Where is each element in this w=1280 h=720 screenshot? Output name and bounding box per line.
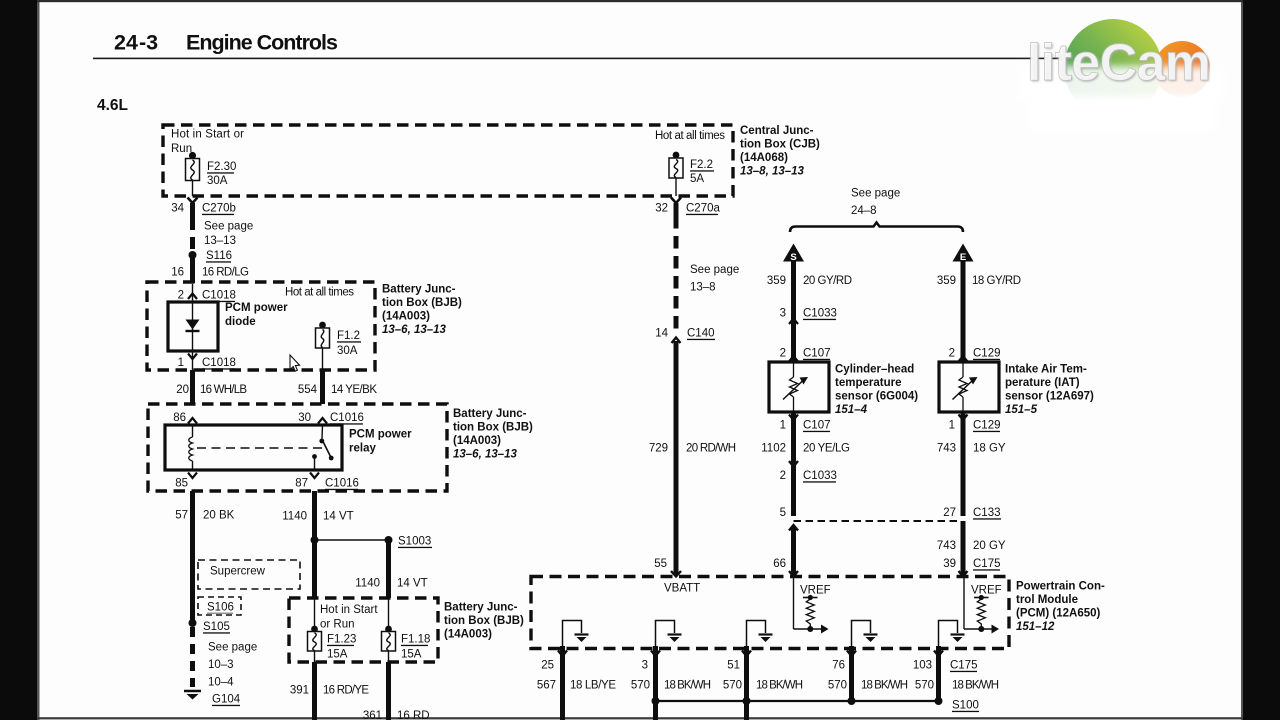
svg-text:151–12: 151–12 [1016,621,1055,633]
svg-text:13–6, 13–13: 13–6, 13–13 [382,324,447,336]
svg-text:F1.18: F1.18 [401,634,430,646]
svg-text:87: 87 [295,478,308,490]
svg-text:VREF: VREF [971,585,1002,597]
svg-text:S105: S105 [203,621,230,633]
svg-text:C1033: C1033 [803,470,837,482]
svg-text:55: 55 [654,558,667,570]
svg-text:743: 743 [937,540,956,552]
svg-text:1: 1 [178,357,184,369]
svg-text:391: 391 [290,685,309,697]
svg-text:27: 27 [943,507,956,519]
svg-text:-3: -3 [139,31,158,55]
svg-text:39: 39 [943,558,956,570]
svg-text:F1.23: F1.23 [327,634,356,646]
svg-text:3: 3 [642,660,648,672]
svg-text:C129: C129 [973,348,1001,360]
svg-text:570: 570 [631,680,650,692]
svg-text:2: 2 [780,348,786,360]
svg-text:13–8, 13–13: 13–8, 13–13 [740,166,805,178]
svg-text:18 BK/WH: 18 BK/WH [861,680,908,692]
svg-text:S116: S116 [206,250,232,262]
svg-text:See page: See page [208,642,257,654]
svg-text:5A: 5A [690,173,704,185]
svg-text:20 BK: 20 BK [203,510,235,522]
svg-text:(14A068): (14A068) [740,152,788,164]
svg-text:16: 16 [171,267,184,279]
svg-text:20 GY/RD: 20 GY/RD [803,275,852,287]
svg-text:C175: C175 [973,558,1001,570]
svg-text:567: 567 [537,680,556,692]
svg-text:25: 25 [541,660,554,672]
svg-text:Run: Run [171,143,192,155]
svg-text:14 VT: 14 VT [323,511,354,523]
svg-text:(14A003): (14A003) [453,435,501,447]
svg-text:Powertrain Con-: Powertrain Con- [1016,581,1105,593]
svg-text:Engine Controls: Engine Controls [186,31,338,55]
svg-text:(PCM) (12A650): (PCM) (12A650) [1016,608,1101,620]
svg-text:C1018: C1018 [202,290,236,302]
svg-text:temperature: temperature [835,377,901,389]
svg-text:76: 76 [832,660,845,672]
svg-text:361: 361 [363,710,382,720]
svg-text:S106: S106 [207,602,234,614]
svg-text:Supercrew: Supercrew [210,566,266,578]
svg-text:Hot at all times: Hot at all times [285,287,354,299]
svg-text:16 RD: 16 RD [397,710,430,720]
svg-text:5: 5 [780,507,786,519]
svg-text:1140: 1140 [282,511,307,523]
svg-text:24: 24 [114,31,138,55]
svg-text:C140: C140 [687,328,715,340]
svg-text:151–4: 151–4 [835,404,868,416]
svg-text:tion Box (CJB): tion Box (CJB) [740,139,820,151]
svg-text:570: 570 [723,680,742,692]
svg-text:359: 359 [937,275,956,287]
svg-text:C270b: C270b [202,203,236,215]
svg-text:sensor (12A697): sensor (12A697) [1005,391,1094,403]
svg-text:C1016: C1016 [325,478,359,490]
svg-text:359: 359 [767,275,786,287]
svg-text:Hot in Start or: Hot in Start or [171,129,244,141]
svg-text:Battery Junc-: Battery Junc- [444,602,518,614]
svg-text:18 BK/WH: 18 BK/WH [756,680,803,692]
svg-text:2: 2 [178,290,184,302]
svg-text:13–6, 13–13: 13–6, 13–13 [453,449,518,461]
svg-text:S: S [790,252,796,263]
svg-text:1: 1 [949,420,955,432]
svg-text:PCM power: PCM power [349,429,412,441]
svg-text:C1018: C1018 [202,357,236,369]
svg-text:14 VT: 14 VT [397,578,428,590]
svg-text:16 RD/LG: 16 RD/LG [202,267,249,279]
svg-text:570: 570 [828,680,847,692]
svg-text:16 RD/YE: 16 RD/YE [323,685,369,697]
svg-text:57: 57 [175,510,188,522]
svg-text:20 GY: 20 GY [973,540,1006,552]
svg-text:VREF: VREF [800,585,831,597]
svg-text:Intake Air Tem-: Intake Air Tem- [1005,364,1087,376]
svg-text:E: E [960,252,966,263]
svg-text:1102: 1102 [761,443,786,455]
svg-text:30: 30 [298,412,311,424]
svg-text:diode: diode [225,316,256,328]
svg-text:15A: 15A [401,649,422,661]
svg-text:sensor (6G004): sensor (6G004) [835,391,918,403]
svg-text:C133: C133 [973,507,1001,519]
svg-text:18 LB/YE: 18 LB/YE [570,680,616,692]
svg-text:554: 554 [298,384,318,396]
svg-text:Battery Junc-: Battery Junc- [382,284,456,296]
svg-text:4.6L: 4.6L [97,97,128,114]
svg-text:1140: 1140 [355,578,380,590]
svg-text:20 RD/WH: 20 RD/WH [686,443,736,455]
svg-text:tion Box (BJB): tion Box (BJB) [453,422,533,434]
svg-text:2: 2 [780,470,786,482]
svg-text:(14A003): (14A003) [382,311,430,323]
svg-text:C1033: C1033 [803,308,837,320]
svg-text:Central Junc-: Central Junc- [740,125,814,137]
svg-text:VBATT: VBATT [664,583,700,595]
svg-text:See page: See page [690,264,739,276]
svg-text:S100: S100 [952,700,979,712]
svg-text:3: 3 [780,308,786,320]
svg-text:85: 85 [175,478,188,490]
svg-text:F2.30: F2.30 [207,161,236,173]
svg-text:24–8: 24–8 [851,205,877,217]
svg-text:2: 2 [949,348,955,360]
svg-text:See page: See page [851,188,900,200]
svg-text:C107: C107 [803,348,831,360]
svg-text:20: 20 [176,384,189,396]
svg-text:tion Box (BJB): tion Box (BJB) [382,297,462,309]
svg-text:trol Module: trol Module [1016,594,1078,606]
svg-text:18 BK/WH: 18 BK/WH [952,680,999,692]
svg-text:Battery Junc-: Battery Junc- [453,408,527,420]
svg-text:(14A003): (14A003) [444,629,492,641]
svg-text:51: 51 [727,660,740,672]
svg-text:30A: 30A [207,175,228,187]
svg-text:18 GY: 18 GY [973,443,1006,455]
svg-text:See page: See page [204,221,253,233]
svg-text:10–4: 10–4 [208,677,234,689]
svg-text:570: 570 [915,680,934,692]
svg-text:C175: C175 [950,660,978,672]
svg-text:or Run: or Run [320,619,355,631]
svg-text:1: 1 [780,420,786,432]
svg-text:relay: relay [349,443,376,455]
svg-text:liteCam: liteCam [1027,34,1211,92]
svg-text:16 WH/LB: 16 WH/LB [200,384,247,396]
svg-text:C107: C107 [803,420,831,432]
svg-text:103: 103 [913,660,932,672]
svg-text:13–13: 13–13 [204,235,236,247]
svg-text:C1016: C1016 [330,412,364,424]
svg-text:34: 34 [171,203,184,215]
svg-text:C129: C129 [973,420,1001,432]
svg-text:13–8: 13–8 [690,282,716,294]
svg-text:Hot at all times: Hot at all times [655,130,725,142]
svg-text:14 YE/BK: 14 YE/BK [331,384,377,396]
svg-text:S1003: S1003 [398,536,431,548]
svg-text:32: 32 [655,203,668,215]
svg-text:Cylinder–head: Cylinder–head [835,364,914,376]
svg-text:tion Box (BJB): tion Box (BJB) [444,615,524,627]
svg-text:86: 86 [173,412,186,424]
svg-text:G104: G104 [212,694,241,706]
svg-text:18 GY/RD: 18 GY/RD [972,275,1021,287]
svg-text:perature (IAT): perature (IAT) [1005,377,1080,389]
svg-text:15A: 15A [327,649,348,661]
svg-text:F2.2: F2.2 [690,159,713,171]
svg-text:14: 14 [655,328,668,340]
svg-text:66: 66 [773,558,786,570]
svg-text:729: 729 [649,443,668,455]
svg-text:743: 743 [937,443,956,455]
svg-text:10–3: 10–3 [208,659,234,671]
svg-text:F1.2: F1.2 [337,330,360,342]
svg-text:151–5: 151–5 [1005,404,1038,416]
svg-text:18 BK/WH: 18 BK/WH [664,680,711,692]
svg-text:Hot in Start: Hot in Start [320,604,378,616]
svg-text:C270a: C270a [686,203,720,215]
svg-text:30A: 30A [337,345,358,357]
svg-text:PCM power: PCM power [225,302,288,314]
svg-text:20 YE/LG: 20 YE/LG [803,443,850,455]
